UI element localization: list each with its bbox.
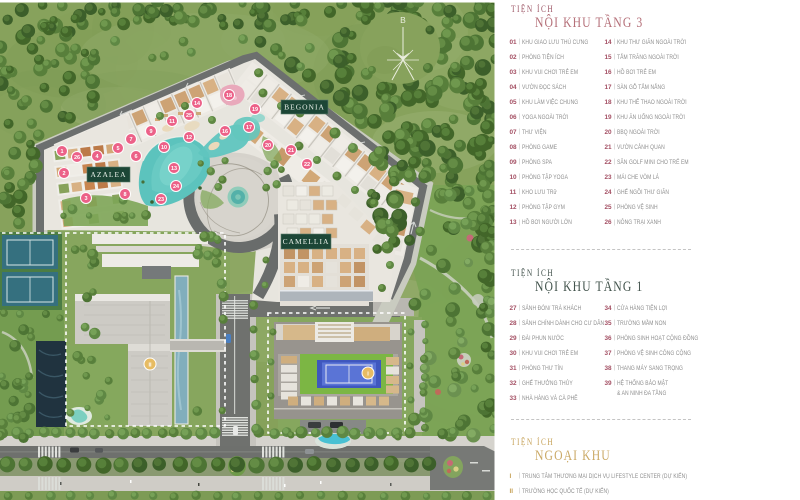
svg-text:B: B (400, 15, 406, 25)
svg-text:3: 3 (84, 196, 87, 202)
svg-text:25: 25 (186, 113, 192, 119)
svg-text:16: 16 (222, 129, 228, 135)
svg-text:13: 13 (171, 166, 177, 172)
svg-text:2: 2 (62, 171, 65, 177)
svg-text:AZALEA: AZALEA (91, 170, 127, 179)
svg-text:22: 22 (304, 162, 310, 168)
svg-text:5: 5 (116, 146, 119, 152)
svg-text:24: 24 (173, 184, 180, 190)
svg-text:II: II (148, 363, 152, 369)
svg-text:8: 8 (123, 192, 126, 198)
svg-text:CAMELLIA: CAMELLIA (283, 237, 330, 246)
svg-text:11: 11 (169, 119, 175, 125)
svg-text:23: 23 (158, 197, 164, 203)
svg-text:12: 12 (186, 135, 192, 141)
svg-text:18: 18 (226, 93, 232, 99)
svg-text:7: 7 (129, 137, 132, 143)
svg-text:6: 6 (134, 154, 137, 160)
svg-text:9: 9 (149, 129, 152, 135)
svg-text:14: 14 (194, 101, 201, 107)
svg-text:21: 21 (288, 148, 294, 154)
svg-text:17: 17 (246, 125, 252, 131)
svg-text:BEGONIA: BEGONIA (284, 103, 325, 112)
svg-text:10: 10 (161, 145, 167, 151)
svg-text:20: 20 (265, 143, 271, 149)
svg-text:1: 1 (60, 149, 63, 155)
svg-text:26: 26 (74, 155, 80, 161)
svg-text:19: 19 (252, 107, 258, 113)
